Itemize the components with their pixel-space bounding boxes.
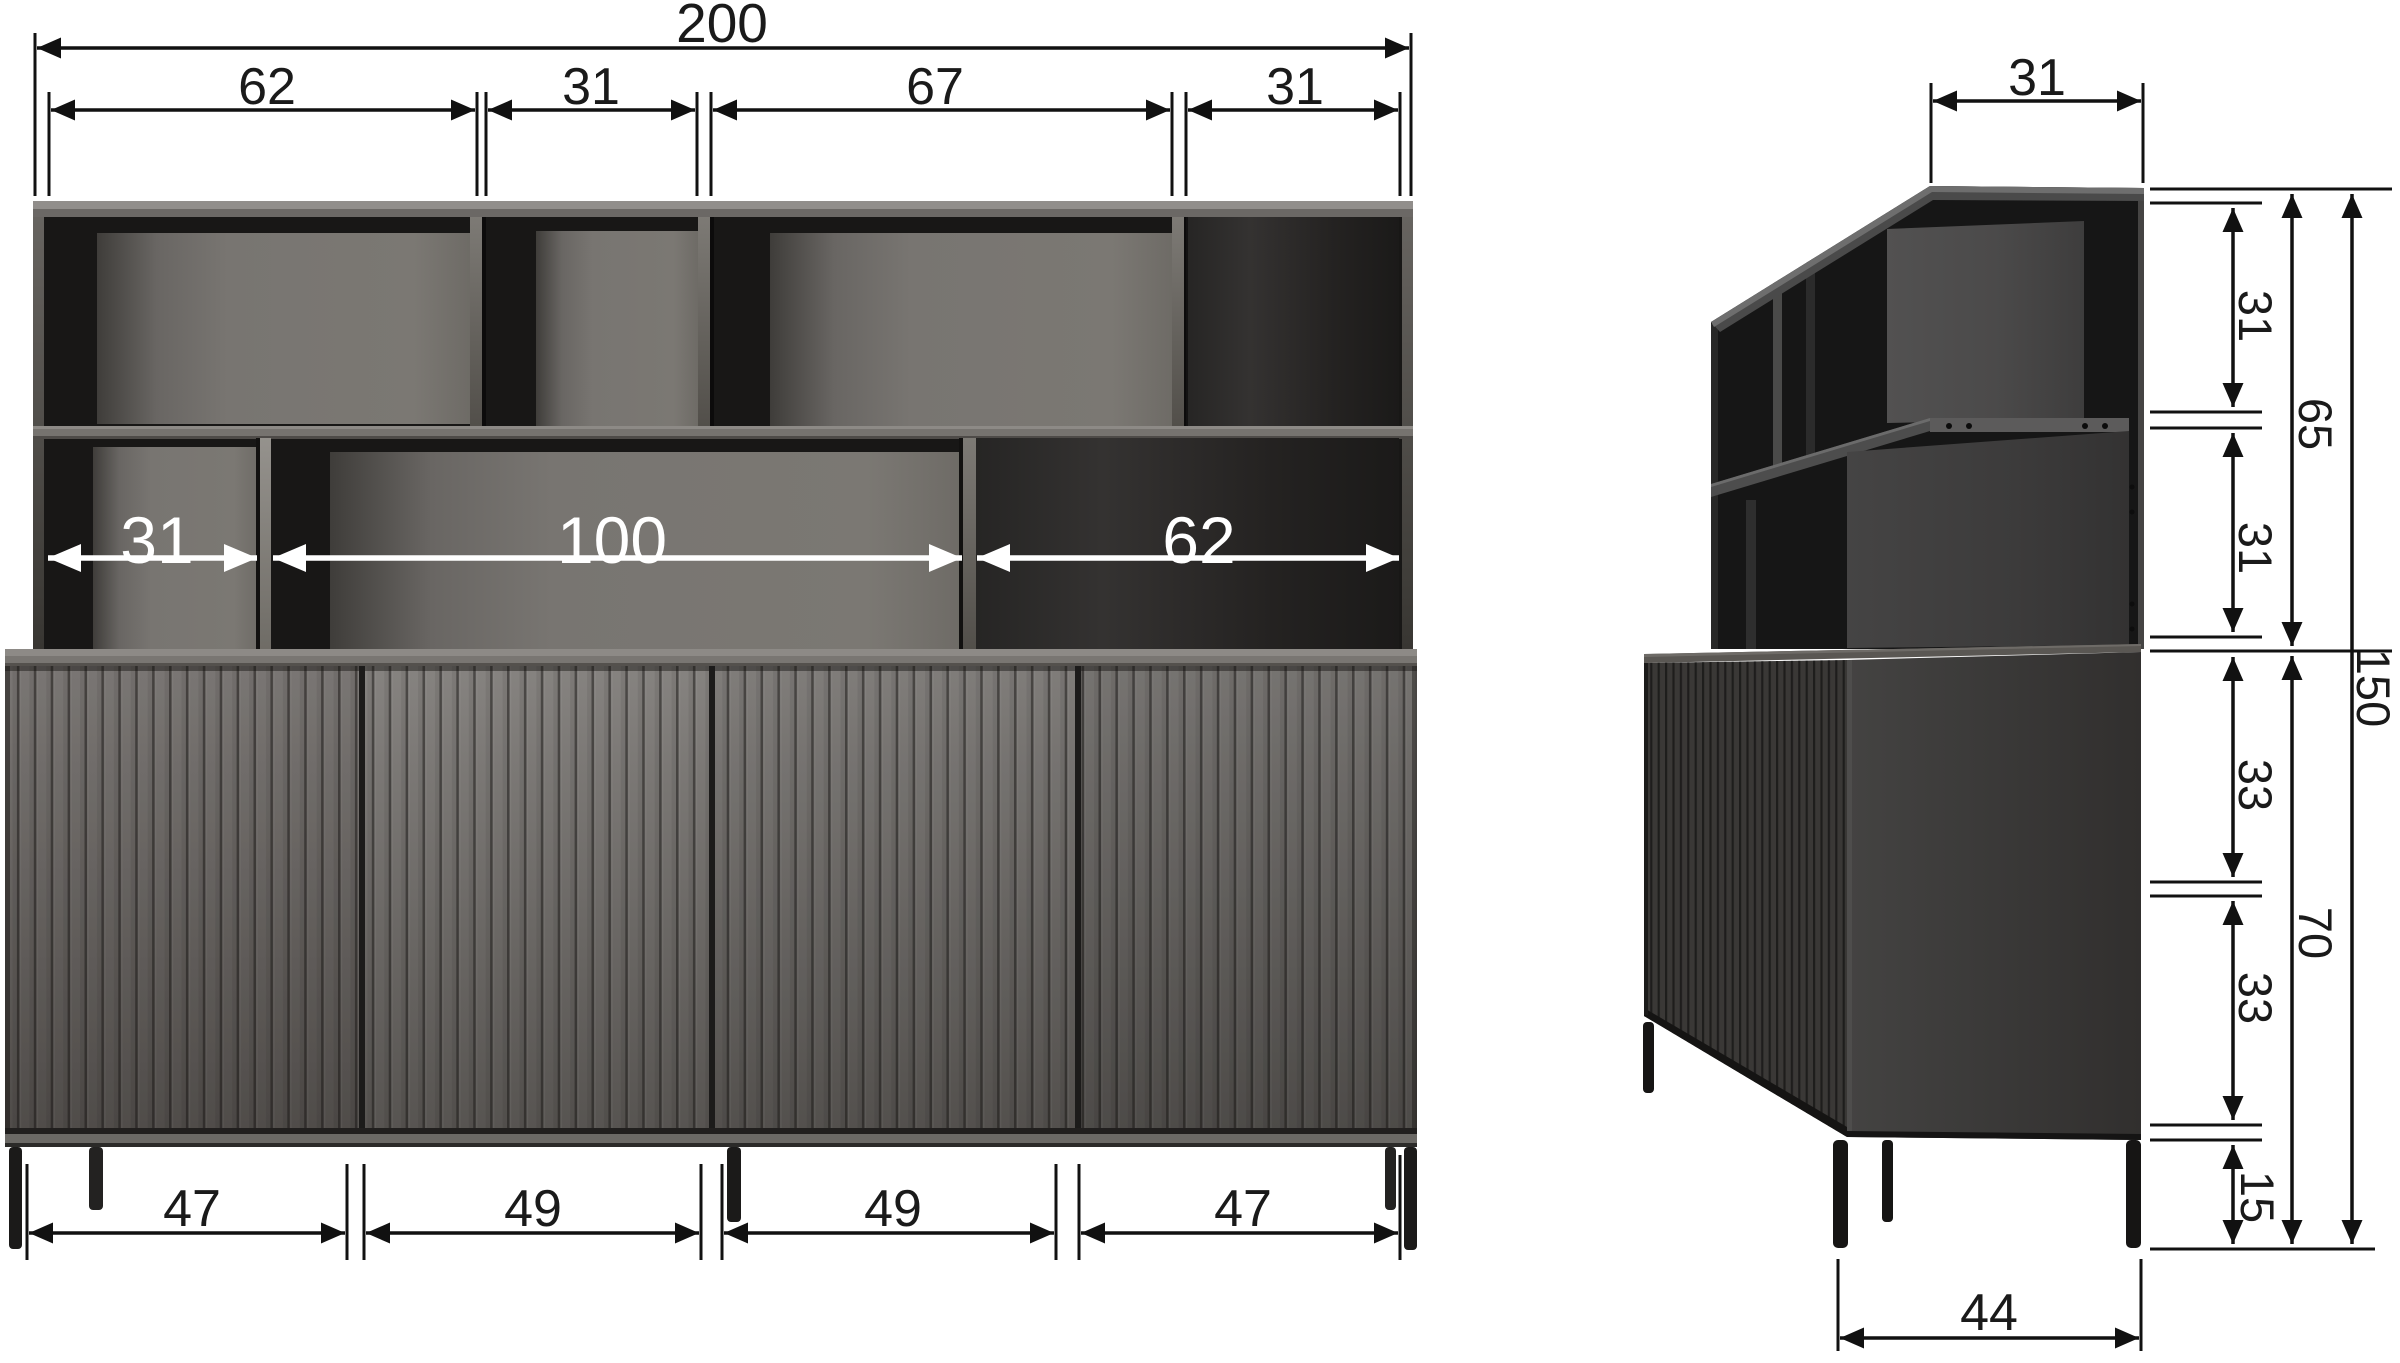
svg-text:44: 44 bbox=[1960, 1284, 2018, 1342]
svg-text:49: 49 bbox=[864, 1180, 922, 1238]
svg-text:31: 31 bbox=[120, 503, 193, 577]
svg-text:31: 31 bbox=[2229, 290, 2282, 342]
svg-text:47: 47 bbox=[1214, 1180, 1272, 1238]
svg-text:31: 31 bbox=[2229, 522, 2282, 574]
svg-text:65: 65 bbox=[2289, 398, 2342, 450]
svg-text:15: 15 bbox=[2231, 1171, 2284, 1223]
svg-text:47: 47 bbox=[163, 1180, 221, 1238]
svg-text:70: 70 bbox=[2289, 907, 2342, 959]
svg-text:150: 150 bbox=[2347, 649, 2400, 727]
svg-text:49: 49 bbox=[504, 1180, 562, 1238]
svg-text:33: 33 bbox=[2229, 972, 2282, 1024]
svg-text:33: 33 bbox=[2229, 759, 2282, 811]
svg-text:62: 62 bbox=[1162, 503, 1235, 577]
svg-text:100: 100 bbox=[557, 503, 667, 577]
svg-text:67: 67 bbox=[906, 58, 964, 116]
svg-text:62: 62 bbox=[238, 58, 296, 116]
svg-text:31: 31 bbox=[562, 58, 620, 116]
svg-text:200: 200 bbox=[676, 0, 768, 54]
svg-text:31: 31 bbox=[2008, 49, 2066, 107]
svg-text:31: 31 bbox=[1266, 58, 1324, 116]
